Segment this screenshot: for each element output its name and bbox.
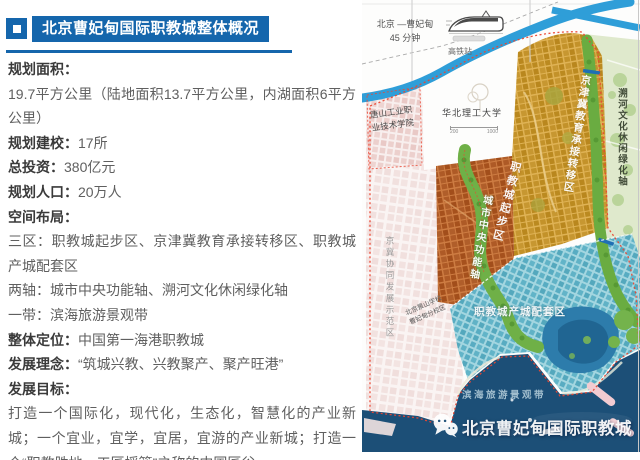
- wechat-icon: [432, 411, 459, 440]
- info-line-value: 两轴：城市中央功能轴、溯河文化休闲绿化轴: [8, 282, 288, 298]
- info-line-value: 380亿元: [64, 159, 115, 175]
- info-line: 三区：职教城起步区、京津冀教育承接转移区、职教城产城配套区: [8, 229, 356, 278]
- info-line-value: 17所: [78, 135, 108, 151]
- info-line: 总投资：380亿元: [8, 155, 356, 180]
- info-line-value: 20万人: [78, 184, 122, 200]
- info-line: 整体定位：中国第一海港职教城: [8, 328, 356, 353]
- info-line: 打造一个国际化，现代化，生态化，智慧化的产业新城；一个宜业，宜学，宜居，宜游的产…: [8, 401, 356, 460]
- info-line-label: 规划建校：: [8, 135, 78, 151]
- info-line: 一带：滨海旅游景观带: [8, 303, 356, 328]
- page: 北京曹妃甸国际职教城整体概况 规划面积： 19.7平方公里（陆地面积13.7平方…: [0, 0, 640, 460]
- info-line-label: 规划人口：: [8, 184, 78, 200]
- watermark-text: 北京曹妃甸国际职教城: [462, 415, 632, 439]
- hsr-station-label: 高铁站: [448, 46, 472, 57]
- info-line: 规划人口：20万人: [8, 180, 356, 205]
- info-line: 发展目标：: [8, 377, 356, 402]
- info-line-value: 中国第一海港职教城: [78, 332, 204, 348]
- support-zone-label: 职教城产城配套区: [474, 304, 566, 319]
- info-panel: 北京曹妃甸国际职教城整体概况 规划面积： 19.7平方公里（陆地面积13.7平方…: [0, 0, 362, 460]
- info-line: 空间布局：: [8, 205, 356, 230]
- info-line-value: 19.7平方公里（陆地面积13.7平方公里，内湖面积6平方公里）: [8, 86, 356, 127]
- info-line: 19.7平方公里（陆地面积13.7平方公里，内湖面积6平方公里）: [8, 82, 356, 131]
- info-line-label: 规划面积：: [8, 61, 78, 77]
- info-line-value: 一带：滨海旅游景观带: [8, 307, 148, 323]
- info-line-value: 打造一个国际化，现代化，生态化，智慧化的产业新城；一个宜业，宜学，宜居，宜游的产…: [8, 405, 356, 460]
- info-line: 发展理念：“筑城兴教、兴教聚产、聚产旺港”: [8, 352, 356, 377]
- bullet-icon-inner: [13, 25, 21, 33]
- watermark: 北京曹妃甸国际职教城: [432, 411, 640, 443]
- suhe-axis-label: 溯河文化休闲绿化轴: [614, 88, 628, 187]
- transit-time-label: 45 分钟: [376, 31, 434, 44]
- scale-min-label: 200: [450, 129, 458, 135]
- bullet-icon: [6, 18, 27, 39]
- coastal-belt-label: 滨海旅游景观带: [462, 387, 546, 401]
- info-line-label: 发展目标：: [8, 381, 78, 397]
- info-line: 规划建校：17所: [8, 131, 356, 156]
- map-panel: 北京 —曹妃甸 45 分钟 高铁站 唐山工业职业技术学院 华北理工大学 200 …: [362, 0, 640, 452]
- scale-line: [450, 127, 498, 128]
- transit-route-label: 北京 —曹妃甸: [376, 17, 434, 30]
- info-line-value: 三区：职教城起步区、京津冀教育承接转移区、职教城产城配套区: [8, 233, 356, 274]
- info-line: 规划面积：: [8, 57, 356, 82]
- info-list: 规划面积： 19.7平方公里（陆地面积13.7平方公里，内湖面积6平方公里） 规…: [8, 57, 356, 460]
- info-line-value: “筑城兴教、兴教聚产、聚产旺港”: [78, 356, 283, 372]
- jingji-demo-zone-label: 京冀协同发展示范区: [384, 236, 396, 340]
- ncust-university-label: 华北理工大学: [442, 106, 502, 119]
- title-underline: [6, 50, 292, 53]
- page-title: 北京曹妃甸国际职教城整体概况: [32, 16, 269, 42]
- info-line-label: 发展理念：: [8, 356, 78, 372]
- map-scale-bar: 200 1000: [450, 124, 498, 136]
- info-line-label: 总投资：: [8, 159, 64, 175]
- scale-max-label: 1000: [487, 129, 498, 135]
- info-line-label: 整体定位：: [8, 332, 78, 348]
- info-line: 两轴：城市中央功能轴、溯河文化休闲绿化轴: [8, 278, 356, 303]
- info-line-label: 空间布局：: [8, 209, 78, 225]
